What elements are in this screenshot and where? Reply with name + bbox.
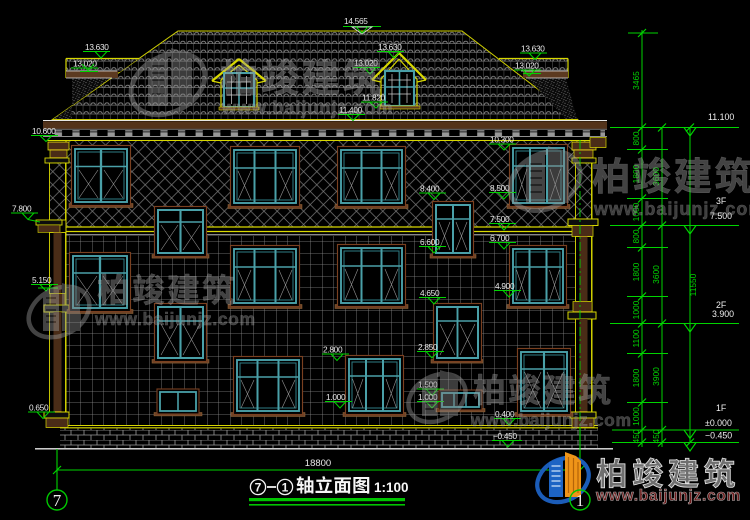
svg-text:7.800: 7.800: [12, 204, 32, 214]
svg-text:www.baijunjz.com: www.baijunjz.com: [470, 410, 632, 430]
svg-text:1800: 1800: [631, 368, 641, 387]
svg-text:6.600: 6.600: [420, 237, 440, 247]
svg-text:13.630: 13.630: [521, 44, 545, 54]
svg-text:800: 800: [631, 131, 641, 145]
svg-text:13.630: 13.630: [378, 42, 402, 52]
svg-text:11.100: 11.100: [708, 112, 734, 122]
svg-text:−0.450: −0.450: [705, 431, 732, 441]
svg-text:2.800: 2.800: [323, 345, 343, 355]
svg-text:450: 450: [651, 429, 661, 443]
svg-text:±0.000: ±0.000: [705, 418, 732, 428]
svg-text:1: 1: [282, 481, 289, 495]
svg-text:1100: 1100: [631, 329, 641, 347]
svg-text:1:100: 1:100: [374, 480, 409, 495]
svg-text:3.900: 3.900: [712, 309, 734, 319]
svg-text:1000: 1000: [631, 300, 641, 319]
svg-text:2.850: 2.850: [418, 342, 438, 352]
svg-text:13.020: 13.020: [515, 61, 539, 71]
svg-text:14.565: 14.565: [344, 16, 368, 26]
svg-text:11550: 11550: [688, 273, 698, 296]
svg-text:−0.450: −0.450: [493, 431, 517, 441]
svg-text:www.baijunjz.com: www.baijunjz.com: [94, 309, 256, 329]
svg-text:3465: 3465: [631, 71, 641, 90]
svg-text:10.300: 10.300: [490, 135, 514, 145]
svg-text:1.000: 1.000: [326, 392, 346, 402]
svg-text:7: 7: [255, 481, 262, 495]
svg-text:4.900: 4.900: [495, 281, 515, 291]
svg-text:4.650: 4.650: [420, 288, 440, 298]
svg-text:800: 800: [631, 229, 641, 243]
svg-text:www.baijunjz.com: www.baijunjz.com: [595, 488, 741, 505]
svg-text:13.630: 13.630: [85, 42, 109, 52]
svg-text:10.600: 10.600: [32, 126, 56, 136]
svg-text:8.400: 8.400: [420, 184, 440, 194]
svg-text:7.500: 7.500: [490, 214, 510, 224]
svg-text:8.500: 8.500: [490, 183, 510, 193]
svg-text:1000: 1000: [631, 407, 641, 426]
svg-text:1800: 1800: [631, 262, 641, 281]
svg-text:6.700: 6.700: [490, 233, 510, 243]
svg-text:3900: 3900: [651, 367, 661, 386]
svg-text:0.650: 0.650: [29, 403, 49, 413]
svg-text:18800: 18800: [305, 458, 331, 469]
svg-text:www.baijunjz.com: www.baijunjz.com: [221, 98, 393, 118]
svg-text:3600: 3600: [651, 265, 661, 284]
svg-text:5.150: 5.150: [32, 275, 52, 285]
svg-text:7: 7: [53, 491, 62, 510]
svg-text:1: 1: [576, 491, 585, 510]
svg-text:450: 450: [631, 429, 641, 443]
svg-text:1F: 1F: [716, 403, 727, 413]
svg-text:www.baijunjz.com: www.baijunjz.com: [593, 199, 750, 219]
